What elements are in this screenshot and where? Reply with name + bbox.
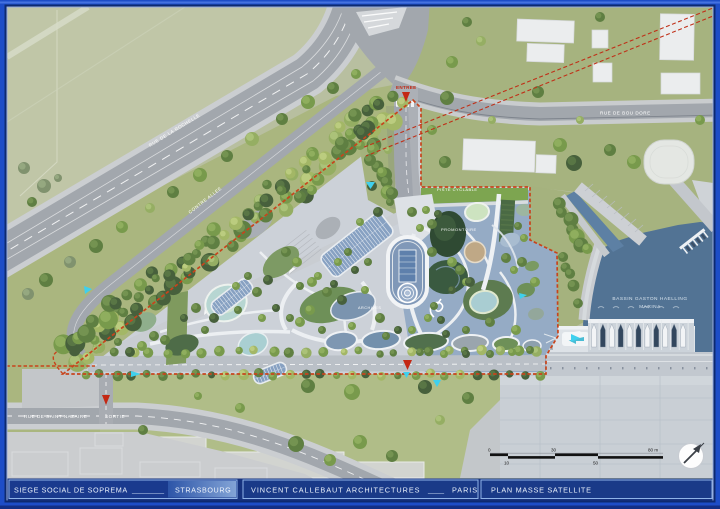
svg-text:SIEGE SOCIAL DE SOPREMA: SIEGE SOCIAL DE SOPREMA bbox=[14, 486, 128, 495]
svg-text:RUE DE SAINT NAZAIRE: RUE DE SAINT NAZAIRE bbox=[24, 414, 87, 419]
svg-text:SORTIE: SORTIE bbox=[105, 414, 125, 419]
svg-text:ENTREE: ENTREE bbox=[396, 85, 416, 90]
svg-text:0: 0 bbox=[488, 448, 491, 453]
svg-text:PROMONTOIRE: PROMONTOIRE bbox=[441, 227, 477, 232]
svg-text:PISTE CYCLABLE: PISTE CYCLABLE bbox=[437, 187, 478, 192]
svg-text:____: ____ bbox=[427, 486, 445, 495]
svg-text:PLAN MASSE SATELLITE: PLAN MASSE SATELLITE bbox=[491, 486, 592, 495]
svg-text:ARCHIVES: ARCHIVES bbox=[358, 306, 381, 310]
svg-text:STRASBOURG: STRASBOURG bbox=[175, 486, 231, 495]
svg-text:80 m: 80 m bbox=[648, 448, 658, 453]
svg-text:VINCENT CALLEBAUT ARCHITECTURE: VINCENT CALLEBAUT ARCHITECTURES bbox=[251, 486, 420, 495]
svg-text:PARIS: PARIS bbox=[452, 486, 478, 495]
svg-text:RUE DE BOU DORE: RUE DE BOU DORE bbox=[600, 111, 651, 116]
svg-text:MARINA: MARINA bbox=[639, 304, 661, 310]
svg-text:________: ________ bbox=[131, 486, 165, 495]
svg-text:10: 10 bbox=[504, 461, 510, 466]
svg-text:BASSIN GASTON HAELLING: BASSIN GASTON HAELLING bbox=[612, 296, 687, 302]
svg-text:30: 30 bbox=[551, 448, 557, 453]
svg-text:50: 50 bbox=[593, 461, 599, 466]
